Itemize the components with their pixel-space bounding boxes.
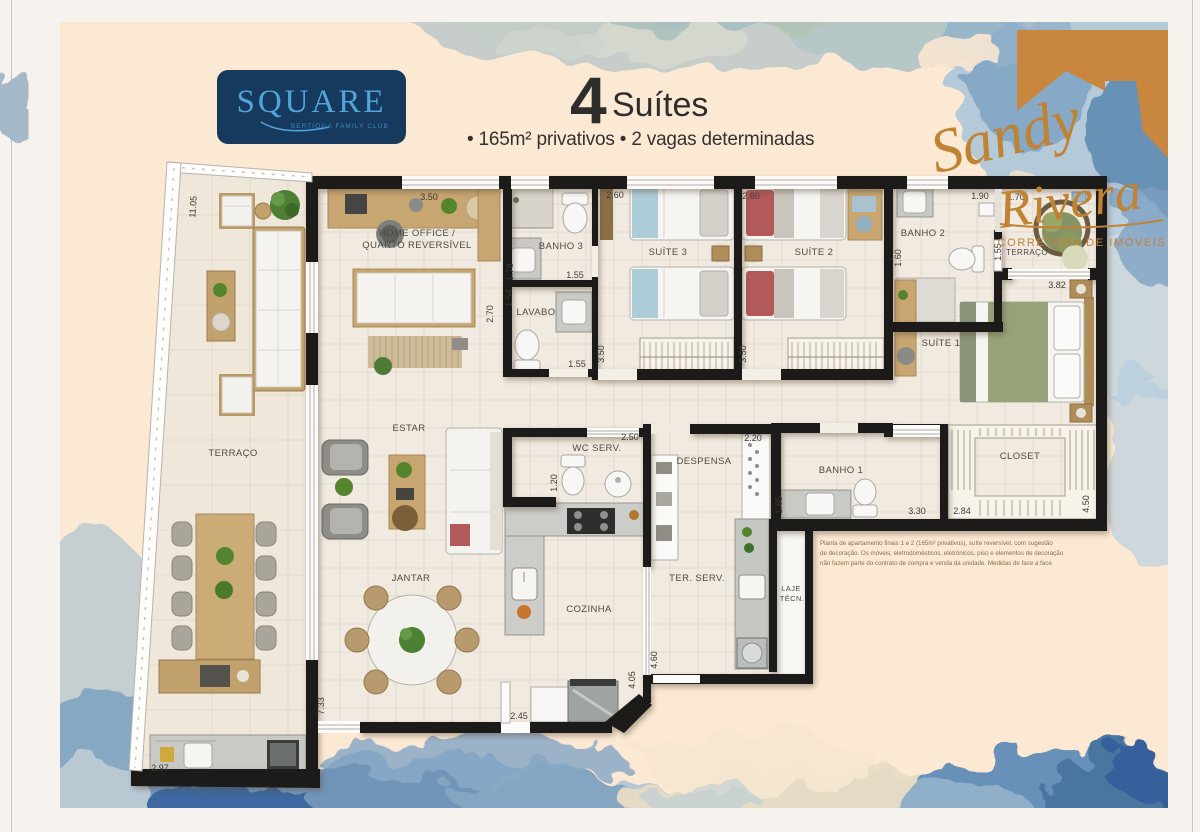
svg-text:CORRETORA DE IMÓVEIS: CORRETORA DE IMÓVEIS bbox=[998, 236, 1167, 249]
